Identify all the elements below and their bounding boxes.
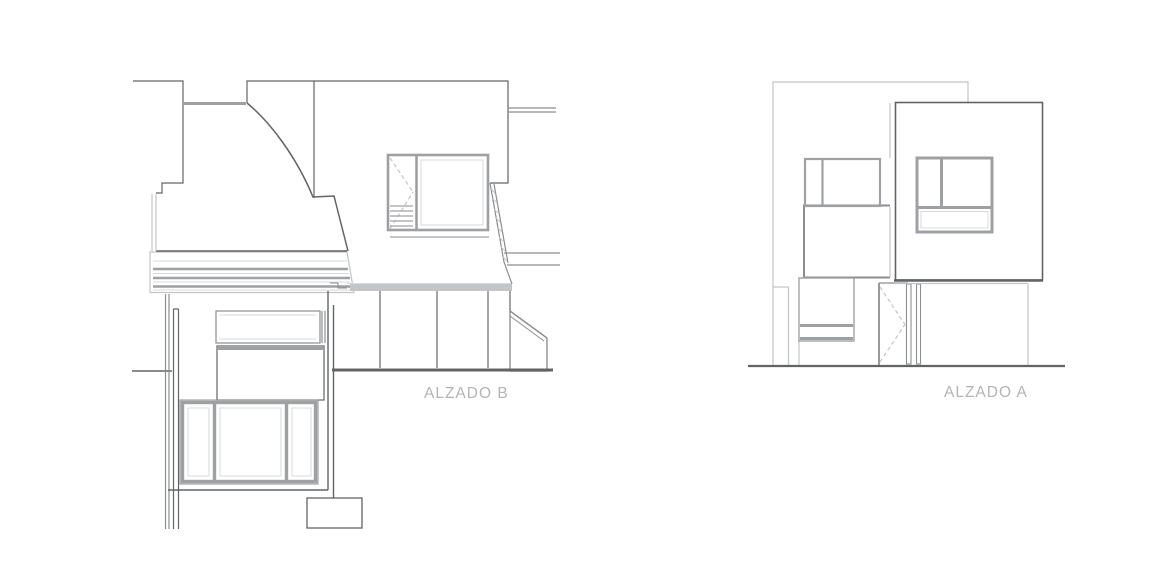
elevation-b-angled-planter <box>510 311 547 371</box>
elevation-b-curved-hood <box>247 103 348 251</box>
elevation-b-label: ALZADO B <box>424 385 509 403</box>
elevation-b-roof-outline <box>133 81 508 198</box>
elevation-a-upper-left-window <box>805 159 880 206</box>
elevation-a-hatched-base <box>895 284 1028 367</box>
elevation-b-footing <box>307 498 362 528</box>
elevation-a-figure <box>748 82 1065 366</box>
elevation-b-neighbour-lines <box>504 108 560 265</box>
drawing-sheet: ALZADO B ALZADO A <box>0 0 1170 570</box>
elevation-b-upper-window <box>388 155 488 230</box>
elevation-b-sloped-parapet <box>390 183 512 284</box>
elevation-b-left-wall <box>152 194 156 251</box>
elevation-a-label: ALZADO A <box>944 384 1028 402</box>
elevation-a-door <box>879 283 921 366</box>
elevation-b-figure <box>132 81 560 529</box>
elevation-b-basement-window <box>180 400 318 484</box>
elevation-a-lower-left-window <box>799 278 854 341</box>
elevation-b-basement-walls <box>166 294 329 529</box>
elevation-b-clerestory-window <box>216 311 325 343</box>
elevations-drawing <box>0 0 1170 570</box>
elevation-b-ground-line <box>132 370 553 371</box>
elevation-b-spandrel-box <box>217 346 324 400</box>
elevation-b-louver-band <box>150 251 354 293</box>
